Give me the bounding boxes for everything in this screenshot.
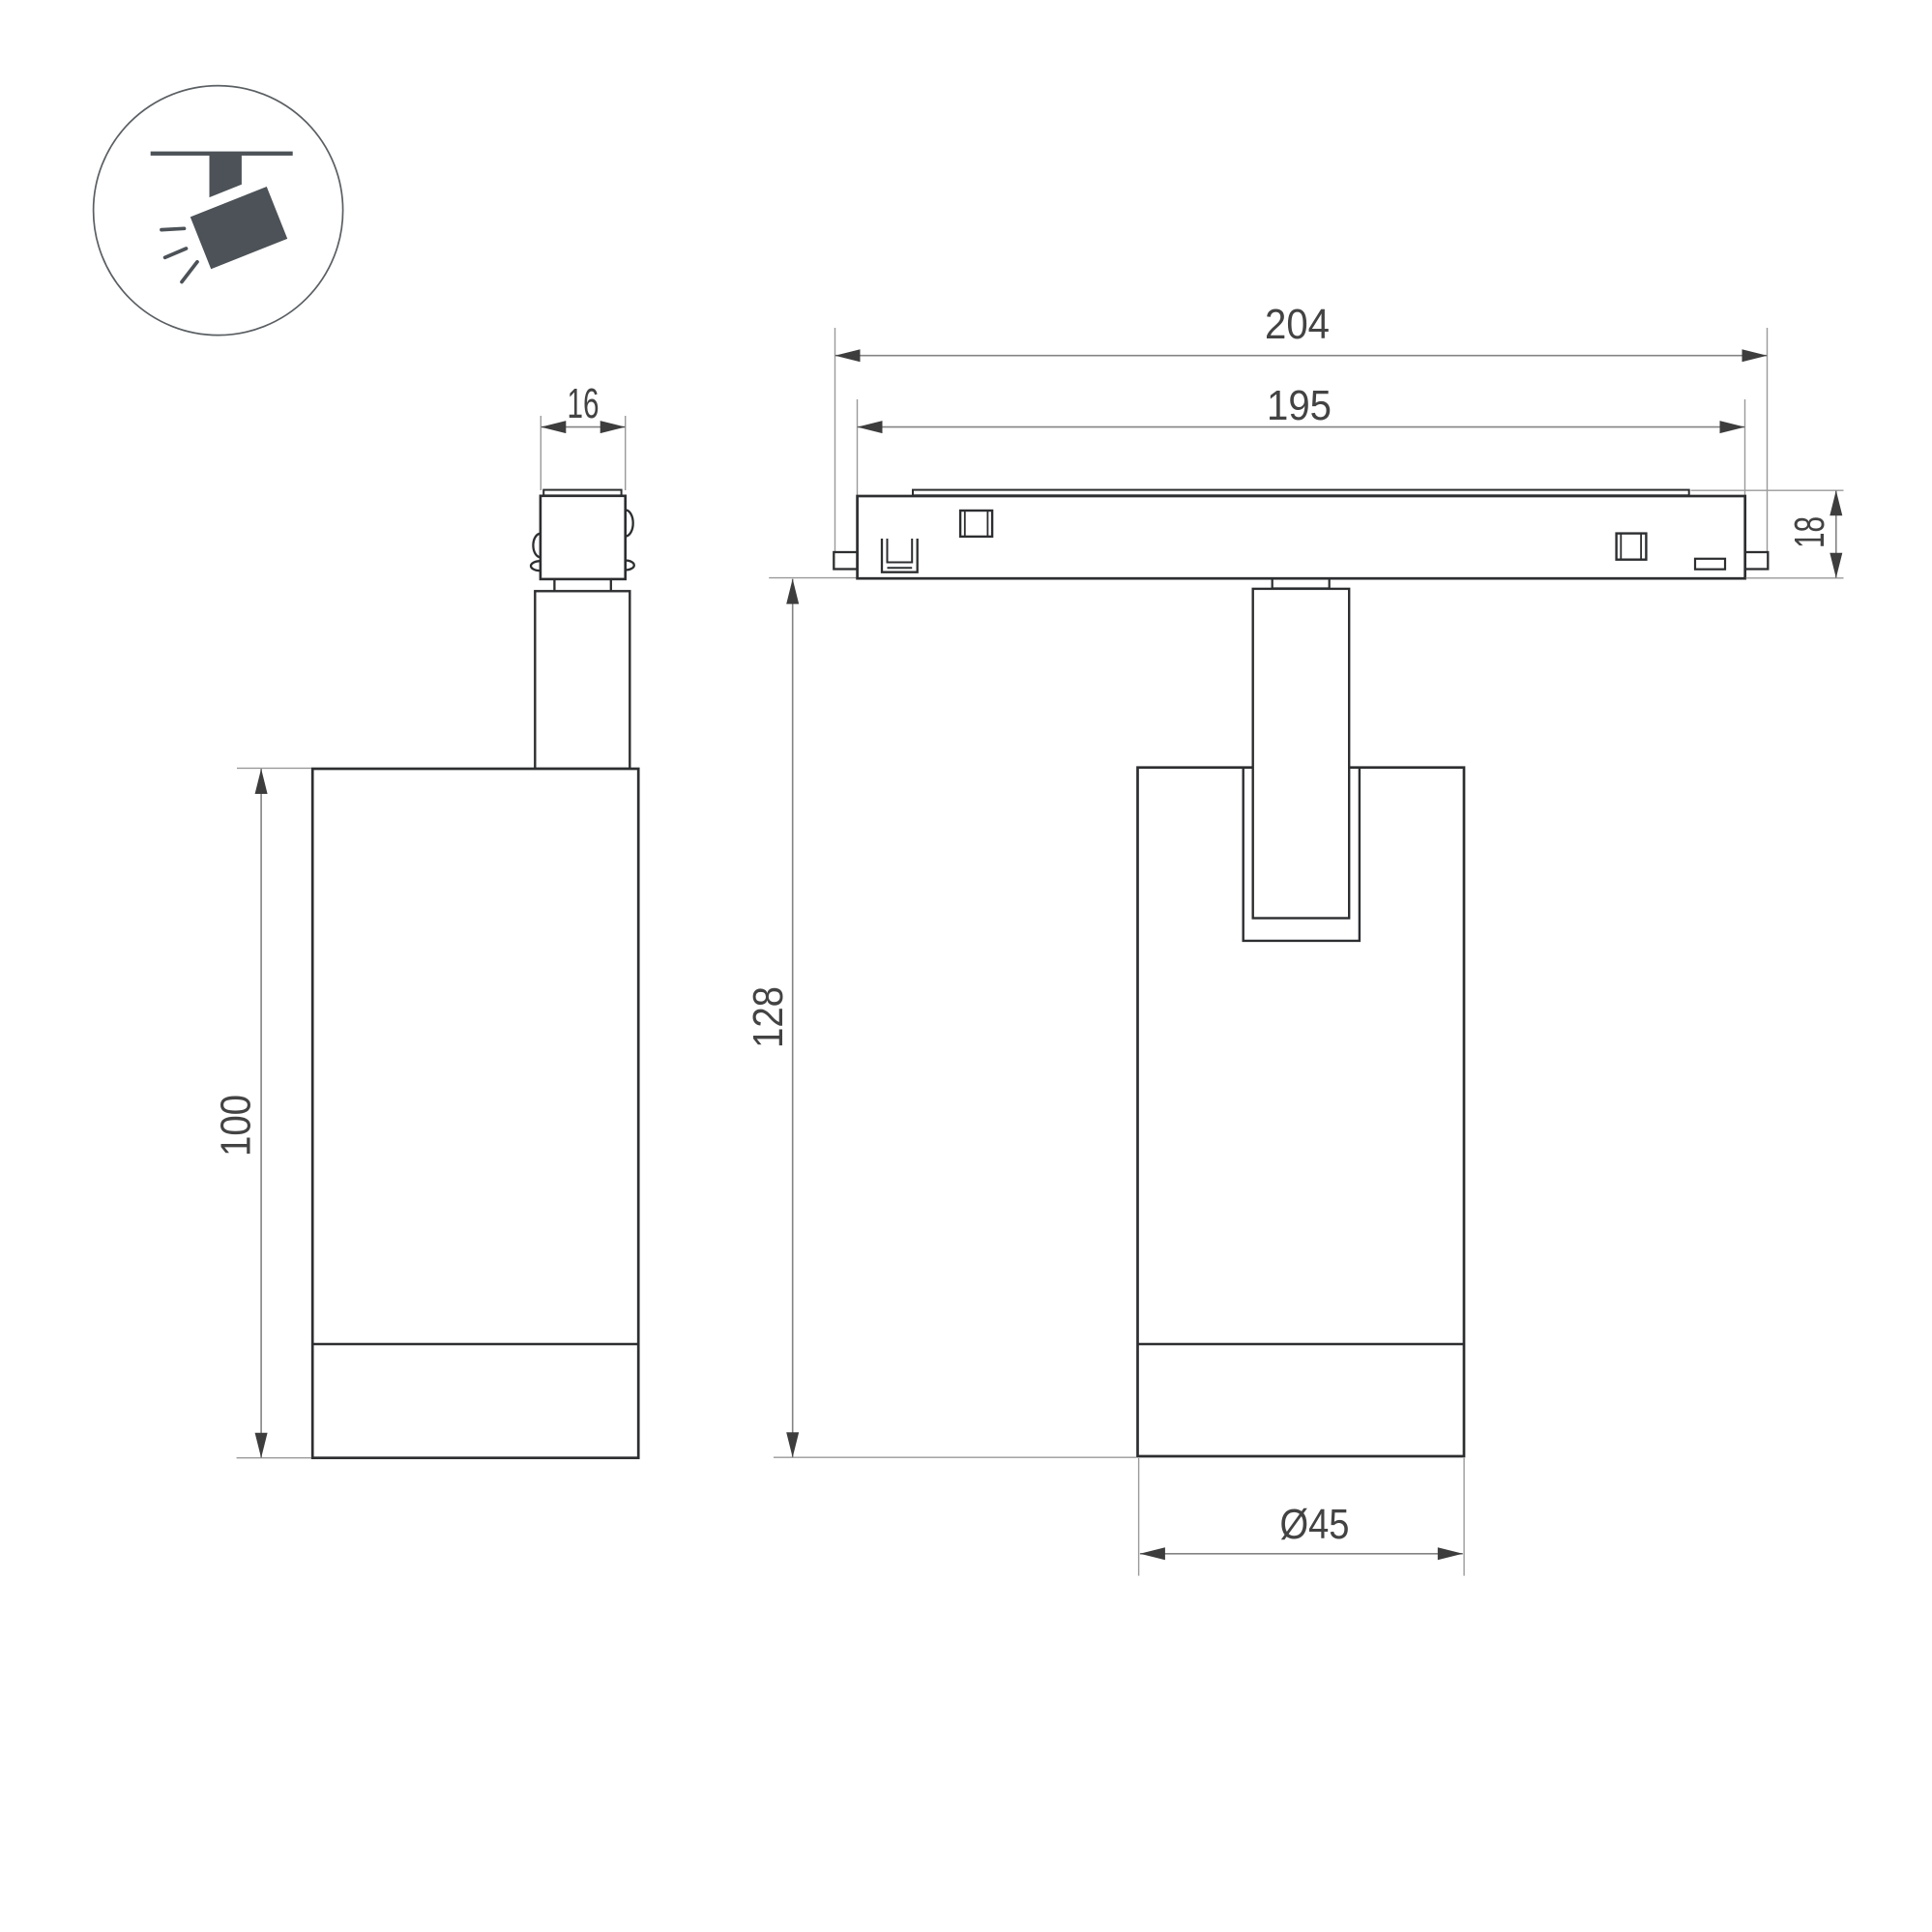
svg-text:16: 16 xyxy=(568,380,600,427)
svg-text:100: 100 xyxy=(213,1095,260,1156)
svg-text:204: 204 xyxy=(1265,301,1330,348)
svg-text:18: 18 xyxy=(1786,516,1833,548)
svg-text:195: 195 xyxy=(1267,382,1332,429)
svg-text:Ø45: Ø45 xyxy=(1280,1501,1350,1548)
svg-text:128: 128 xyxy=(745,986,792,1048)
